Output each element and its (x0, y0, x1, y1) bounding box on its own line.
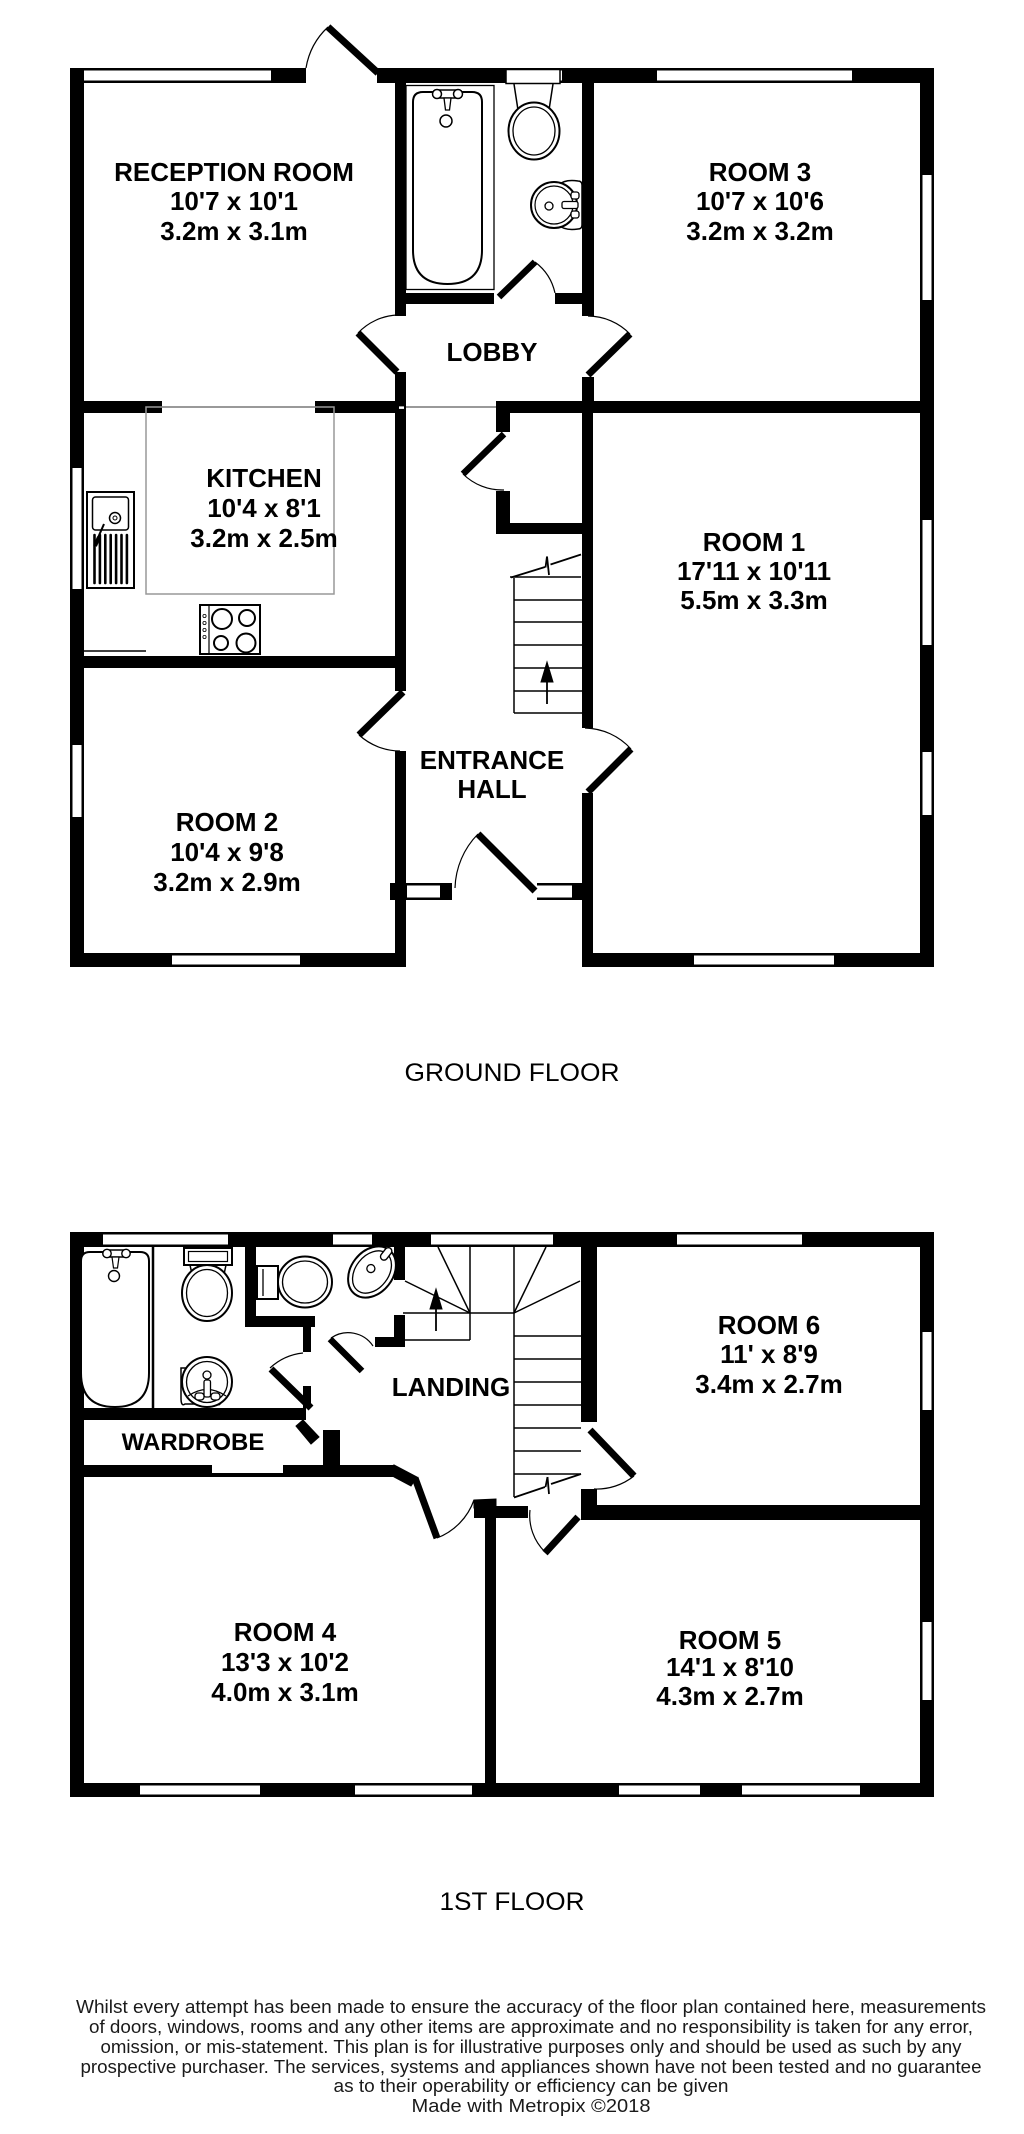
svg-text:4.0m x 3.1m: 4.0m x 3.1m (211, 1677, 358, 1707)
svg-text:HALL: HALL (457, 774, 526, 804)
svg-text:10'4 x 8'1: 10'4 x 8'1 (207, 493, 321, 523)
svg-text:14'1 x 8'10: 14'1 x 8'10 (666, 1652, 794, 1682)
svg-text:10'7 x 10'1: 10'7 x 10'1 (170, 186, 298, 216)
svg-text:1ST FLOOR: 1ST FLOOR (440, 1888, 585, 1916)
svg-text:Whilst every attempt has been: Whilst every attempt has been made to en… (76, 1997, 986, 2017)
svg-text:ROOM 3: ROOM 3 (709, 157, 812, 187)
svg-text:3.2m x 3.2m: 3.2m x 3.2m (686, 216, 833, 246)
svg-text:13'3 x 10'2: 13'3 x 10'2 (221, 1647, 349, 1677)
svg-text:ROOM 1: ROOM 1 (703, 527, 806, 557)
svg-text:10'7 x 10'6: 10'7 x 10'6 (696, 186, 824, 216)
svg-text:3.2m x 3.1m: 3.2m x 3.1m (160, 216, 307, 246)
svg-text:5.5m x 3.3m: 5.5m x 3.3m (680, 585, 827, 615)
svg-text:LANDING: LANDING (392, 1372, 510, 1402)
svg-text:ROOM 6: ROOM 6 (718, 1310, 821, 1340)
svg-text:ROOM 5: ROOM 5 (679, 1625, 782, 1655)
svg-text:WARDROBE: WARDROBE (122, 1429, 265, 1456)
svg-text:KITCHEN: KITCHEN (206, 463, 322, 493)
svg-text:3.2m x 2.5m: 3.2m x 2.5m (190, 523, 337, 553)
svg-text:ENTRANCE: ENTRANCE (420, 745, 564, 775)
svg-text:RECEPTION ROOM: RECEPTION ROOM (114, 157, 354, 187)
svg-text:as to their operability or eff: as to their operability or efficiency ca… (334, 2076, 729, 2096)
svg-text:ROOM 4: ROOM 4 (234, 1617, 337, 1647)
svg-text:3.2m x 2.9m: 3.2m x 2.9m (153, 867, 300, 897)
svg-text:LOBBY: LOBBY (447, 337, 538, 367)
svg-text:GROUND FLOOR: GROUND FLOOR (405, 1059, 620, 1087)
svg-text:17'11 x 10'11: 17'11 x 10'11 (677, 556, 831, 586)
svg-text:ROOM 2: ROOM 2 (176, 807, 279, 837)
svg-text:prospective purchaser. The ser: prospective purchaser. The services, sys… (81, 2057, 982, 2077)
svg-text:4.3m x 2.7m: 4.3m x 2.7m (656, 1681, 803, 1711)
svg-text:11' x 8'9: 11' x 8'9 (720, 1339, 818, 1369)
svg-text:omission, or mis-statement. Th: omission, or mis-statement. This plan is… (101, 2037, 962, 2057)
svg-text:10'4 x 9'8: 10'4 x 9'8 (170, 837, 284, 867)
svg-text:Made with Metropix ©2018: Made with Metropix ©2018 (412, 2096, 651, 2116)
svg-text:3.4m x 2.7m: 3.4m x 2.7m (695, 1369, 842, 1399)
svg-text:of doors, windows, rooms and a: of doors, windows, rooms and any other i… (89, 2017, 973, 2037)
